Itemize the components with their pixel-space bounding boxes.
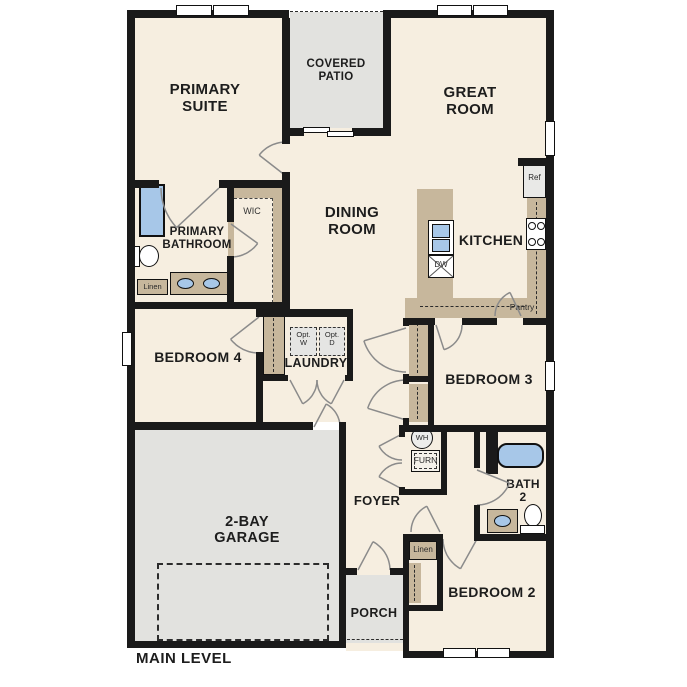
- wall-segment: [462, 318, 497, 325]
- wall-segment: [347, 309, 353, 381]
- bathtub: [497, 443, 544, 468]
- wall-segment: [518, 158, 546, 166]
- room-label-laundry: LAUNDRY: [284, 356, 348, 370]
- bedroom3-closet-rod-upper: [417, 323, 418, 373]
- room-label-porch: PORCH: [349, 606, 399, 620]
- burner: [528, 222, 536, 230]
- wall-segment: [127, 422, 313, 430]
- room-label-bedroom-3: BEDROOM 3: [444, 372, 534, 388]
- wall-segment: [282, 136, 290, 144]
- floor-plan: PRIMARY SUITE COVERED PATIO GREAT ROOM D…: [0, 0, 687, 687]
- window: [545, 121, 555, 156]
- wall-segment: [352, 128, 391, 136]
- room-label-bedroom-4: BEDROOM 4: [153, 350, 243, 366]
- label-ref: Ref: [523, 174, 546, 182]
- wall-segment: [263, 375, 288, 381]
- bedroom2-closet: [409, 563, 421, 603]
- window: [437, 5, 472, 16]
- wall-segment: [256, 309, 263, 317]
- wall-segment: [403, 418, 409, 425]
- wall-segment: [441, 425, 447, 495]
- label-opt-washer-line2: W: [290, 339, 317, 347]
- room-label-great-room: GREAT ROOM: [435, 85, 505, 119]
- room-label-dining-room: DINING ROOM: [317, 205, 387, 239]
- hall-closet-strip: [263, 315, 285, 375]
- wall-segment: [282, 128, 304, 136]
- wall-segment: [227, 184, 234, 222]
- bedroom2-closet-rod: [414, 565, 415, 601]
- room-label-foyer: FOYER: [352, 494, 402, 509]
- wall-segment: [399, 432, 405, 437]
- wall-segment: [478, 534, 546, 541]
- bedroom3-closet-rod-lower: [417, 387, 418, 419]
- wall-segment: [403, 534, 409, 651]
- label-opt-dryer: Opt. D: [319, 331, 345, 347]
- label-furn: FURN: [413, 456, 438, 465]
- wall-segment: [408, 318, 435, 325]
- wall-segment: [282, 18, 290, 136]
- wall-segment: [399, 489, 447, 495]
- wall-segment: [127, 10, 135, 648]
- garage-door-bay: [157, 563, 329, 641]
- burner: [537, 238, 545, 246]
- toilet-bowl-bath2: [524, 504, 542, 527]
- wall-segment: [403, 318, 409, 326]
- wall-segment: [546, 10, 554, 658]
- window: [176, 5, 212, 16]
- burner: [528, 238, 536, 246]
- wall-segment: [390, 568, 403, 575]
- label-linen-hall: Linen: [409, 546, 437, 554]
- bath2-sink: [494, 515, 511, 527]
- wall-segment: [134, 180, 159, 188]
- hall-closet-rod: [273, 318, 274, 372]
- bedroom3-closet-lower: [409, 384, 428, 422]
- wall-segment: [403, 534, 443, 541]
- wall-segment: [127, 302, 290, 309]
- wall-segment: [399, 425, 546, 432]
- wall-segment: [256, 352, 263, 422]
- wall-segment: [403, 605, 443, 611]
- sliding-door-panel: [327, 131, 354, 137]
- wall-segment: [428, 325, 434, 425]
- wall-segment: [437, 541, 443, 607]
- label-opt-washer: Opt. W: [290, 331, 317, 347]
- wall-segment: [282, 172, 290, 182]
- vanity-sink-right: [203, 278, 220, 289]
- room-label-primary-suite: PRIMARY SUITE: [160, 82, 250, 116]
- room-label-bedroom-2: BEDROOM 2: [447, 585, 537, 601]
- room-label-primary-bathroom: PRIMARY BATHROOM: [157, 226, 237, 252]
- room-label-garage: 2-BAY GARAGE: [202, 514, 292, 546]
- window: [545, 361, 555, 391]
- label-dw: DW: [428, 261, 454, 269]
- window: [122, 332, 132, 366]
- wall-segment: [474, 432, 480, 468]
- sink-basin-top: [432, 224, 450, 238]
- label-pantry: Pantry: [500, 303, 544, 312]
- porch-open-edge: [347, 639, 403, 640]
- window: [443, 648, 476, 658]
- wall-segment: [282, 188, 290, 309]
- room-label-kitchen: KITCHEN: [456, 233, 526, 249]
- patio-open-edge: [290, 11, 383, 12]
- wall-segment: [346, 568, 357, 575]
- wall-segment: [263, 309, 353, 317]
- level-title: MAIN LEVEL: [136, 651, 232, 668]
- wall-segment: [523, 318, 546, 325]
- toilet-tank-bath2: [520, 525, 545, 534]
- label-linen-bath: Linen: [137, 283, 168, 291]
- wall-segment: [345, 375, 353, 381]
- window: [477, 648, 510, 658]
- toilet-bowl-primary: [139, 245, 159, 267]
- wall-segment: [127, 641, 346, 648]
- wall-segment: [383, 18, 391, 136]
- room-label-bath-2: BATH 2: [503, 478, 543, 505]
- room-label-wic: WIC: [238, 207, 266, 216]
- burner: [537, 222, 545, 230]
- wall-segment: [339, 422, 346, 648]
- sink-basin-bottom: [432, 239, 450, 252]
- room-label-covered-patio: COVERED PATIO: [301, 58, 371, 84]
- label-wh: WH: [411, 434, 433, 442]
- bedroom3-closet-upper: [409, 320, 428, 376]
- label-opt-dryer-line2: D: [319, 339, 345, 347]
- sliding-door-panel: [303, 127, 330, 133]
- window: [473, 5, 508, 16]
- vanity-sink-left: [177, 278, 194, 289]
- window: [213, 5, 249, 16]
